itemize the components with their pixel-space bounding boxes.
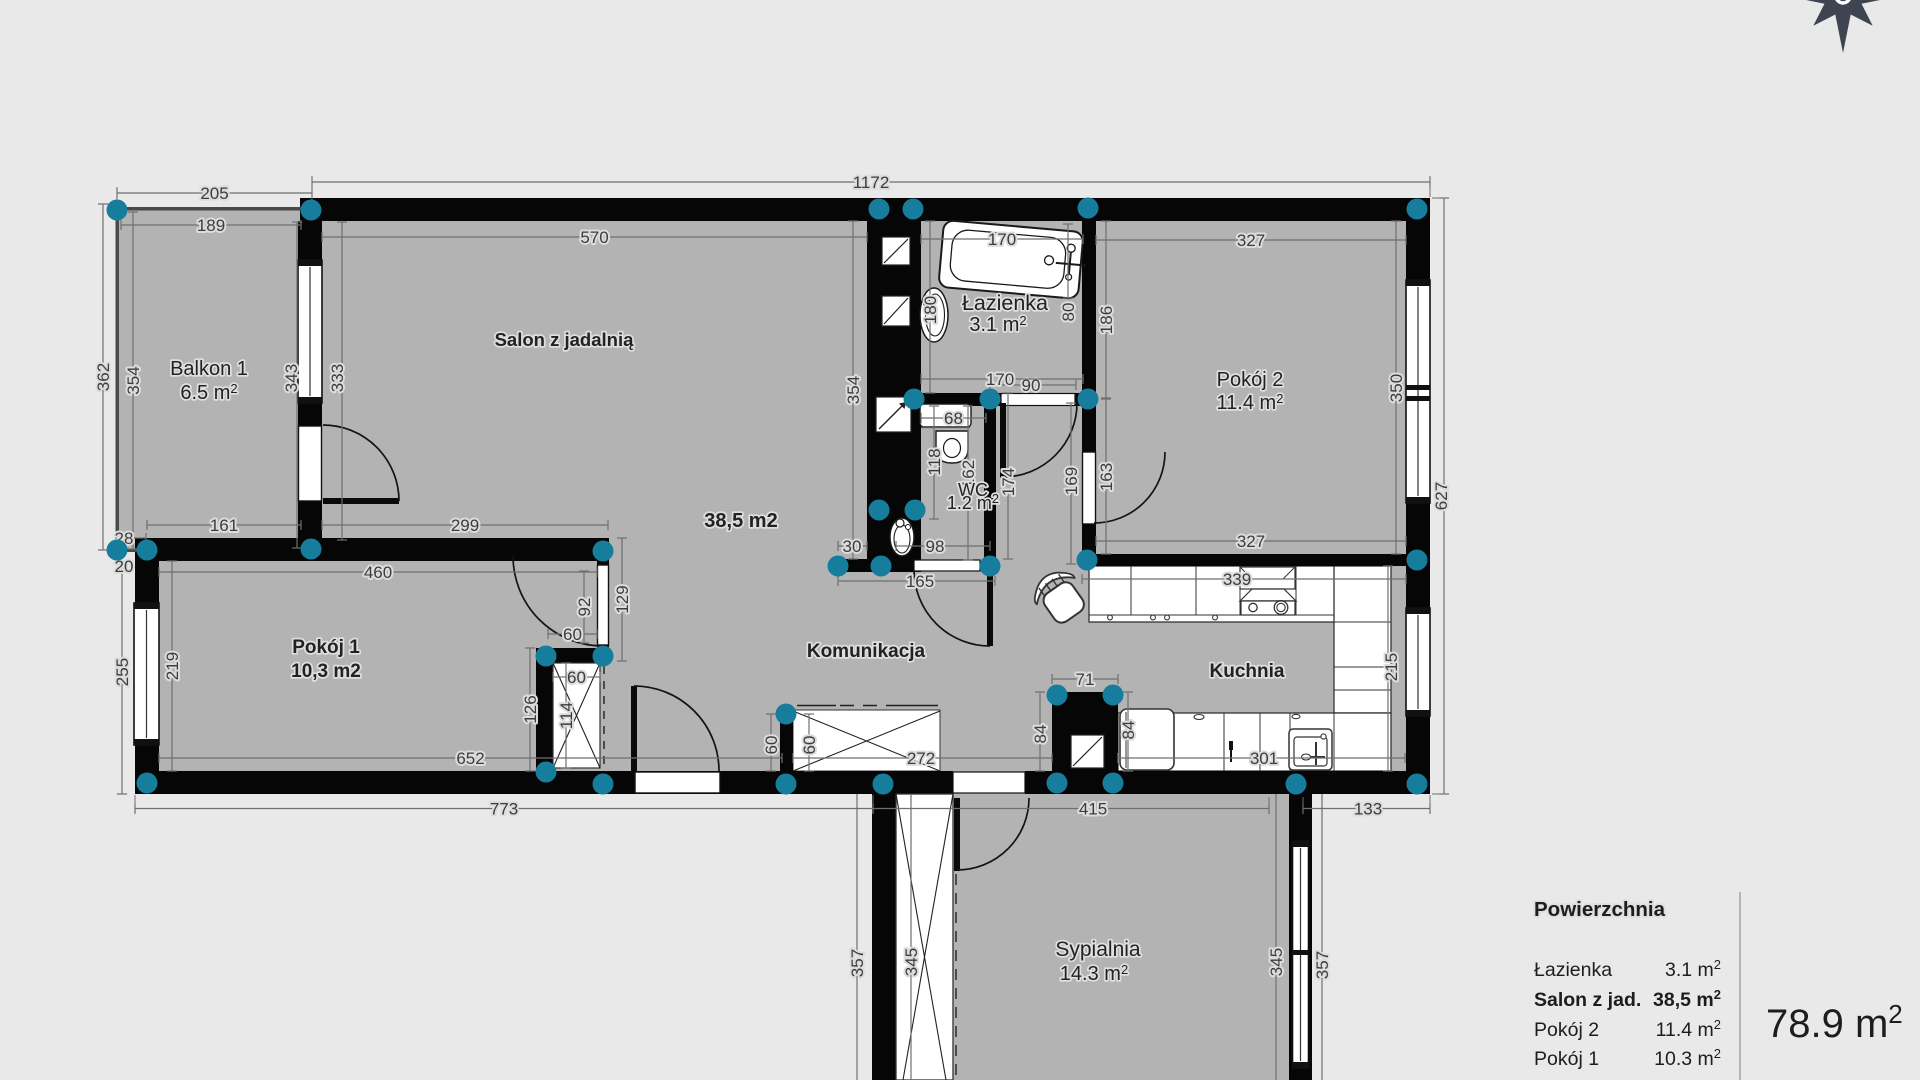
svg-text:84: 84 <box>1119 721 1138 740</box>
svg-text:163: 163 <box>1097 463 1116 491</box>
svg-text:345: 345 <box>902 948 921 976</box>
svg-text:11.4 m2: 11.4 m2 <box>1656 1017 1721 1041</box>
svg-text:301: 301 <box>1250 749 1278 768</box>
svg-text:14.3 m2: 14.3 m2 <box>1060 962 1128 985</box>
svg-text:773: 773 <box>490 799 518 818</box>
svg-text:327: 327 <box>1237 231 1265 250</box>
svg-text:343: 343 <box>282 364 301 392</box>
svg-text:118: 118 <box>925 448 944 475</box>
svg-text:350: 350 <box>1387 374 1406 402</box>
svg-text:68: 68 <box>944 409 963 428</box>
svg-text:38,5 m2: 38,5 m2 <box>704 510 777 532</box>
svg-text:255: 255 <box>113 658 132 686</box>
svg-text:60: 60 <box>762 736 781 755</box>
svg-text:3.1 m2: 3.1 m2 <box>1665 957 1721 981</box>
svg-text:170: 170 <box>986 370 1014 389</box>
svg-text:114: 114 <box>557 702 576 729</box>
svg-text:170: 170 <box>988 230 1016 249</box>
svg-text:11.4 m2: 11.4 m2 <box>1217 391 1284 414</box>
svg-text:215: 215 <box>1382 653 1401 681</box>
svg-text:333: 333 <box>328 364 347 392</box>
svg-text:357: 357 <box>1313 951 1332 979</box>
svg-text:169: 169 <box>1062 467 1081 495</box>
svg-text:84: 84 <box>1031 725 1050 744</box>
svg-text:Kuchnia: Kuchnia <box>1210 661 1285 682</box>
svg-text:6.5 m2: 6.5 m2 <box>180 381 237 404</box>
svg-text:219: 219 <box>163 652 182 680</box>
svg-text:133: 133 <box>1354 799 1382 818</box>
svg-text:126: 126 <box>521 695 540 723</box>
svg-text:Sypialnia: Sypialnia <box>1055 938 1141 961</box>
svg-text:10,3 m2: 10,3 m2 <box>291 661 361 682</box>
svg-text:78.9 m2: 78.9 m2 <box>1766 999 1903 1046</box>
svg-text:272: 272 <box>907 749 935 768</box>
svg-text:98: 98 <box>926 537 945 556</box>
svg-text:Salon z jad.: Salon z jad. <box>1534 989 1641 1011</box>
svg-text:205: 205 <box>200 184 228 203</box>
svg-text:186: 186 <box>1097 306 1116 334</box>
svg-text:570: 570 <box>580 228 608 247</box>
svg-text:129: 129 <box>613 585 632 613</box>
svg-text:460: 460 <box>364 563 392 582</box>
svg-text:Pokój 2: Pokój 2 <box>1217 369 1284 391</box>
svg-text:Powierzchnia: Powierzchnia <box>1534 898 1666 921</box>
svg-text:299: 299 <box>451 516 479 535</box>
svg-text:10.3 m2: 10.3 m2 <box>1654 1046 1721 1070</box>
svg-text:415: 415 <box>1079 799 1107 818</box>
svg-text:Balkon 1: Balkon 1 <box>170 358 248 380</box>
svg-text:345: 345 <box>1267 948 1286 976</box>
svg-text:1.2 m2: 1.2 m2 <box>947 491 999 513</box>
svg-text:180: 180 <box>921 296 940 324</box>
svg-text:60: 60 <box>563 625 582 644</box>
svg-text:60: 60 <box>800 736 819 755</box>
svg-text:354: 354 <box>844 376 863 404</box>
svg-text:60: 60 <box>567 668 586 687</box>
svg-text:189: 189 <box>197 216 225 235</box>
svg-text:339: 339 <box>1223 570 1251 589</box>
svg-text:327: 327 <box>1237 532 1265 551</box>
svg-text:30: 30 <box>843 537 862 556</box>
svg-text:174: 174 <box>999 468 1018 496</box>
svg-text:71: 71 <box>1076 670 1095 689</box>
svg-text:165: 165 <box>906 572 934 591</box>
svg-text:627: 627 <box>1432 482 1451 510</box>
svg-text:38,5 m2: 38,5 m2 <box>1653 987 1721 1011</box>
svg-text:354: 354 <box>124 366 143 394</box>
svg-text:Pokój 1: Pokój 1 <box>292 637 360 658</box>
svg-text:Łazienka: Łazienka <box>962 291 1048 315</box>
svg-text:Komunikacja: Komunikacja <box>807 641 926 662</box>
svg-text:80: 80 <box>1059 303 1078 322</box>
svg-text:Salon z jadalnią: Salon z jadalnią <box>495 329 634 350</box>
svg-text:357: 357 <box>848 949 867 977</box>
svg-text:92: 92 <box>575 598 594 617</box>
svg-text:3.1 m2: 3.1 m2 <box>969 313 1026 336</box>
svg-text:Pokój 2: Pokój 2 <box>1534 1019 1599 1041</box>
svg-text:161: 161 <box>210 516 238 535</box>
svg-text:1172: 1172 <box>853 173 890 192</box>
svg-text:Łazienka: Łazienka <box>1534 959 1612 981</box>
svg-text:362: 362 <box>94 363 113 391</box>
svg-text:Pokój 1: Pokój 1 <box>1534 1048 1599 1070</box>
svg-text:652: 652 <box>456 749 484 768</box>
